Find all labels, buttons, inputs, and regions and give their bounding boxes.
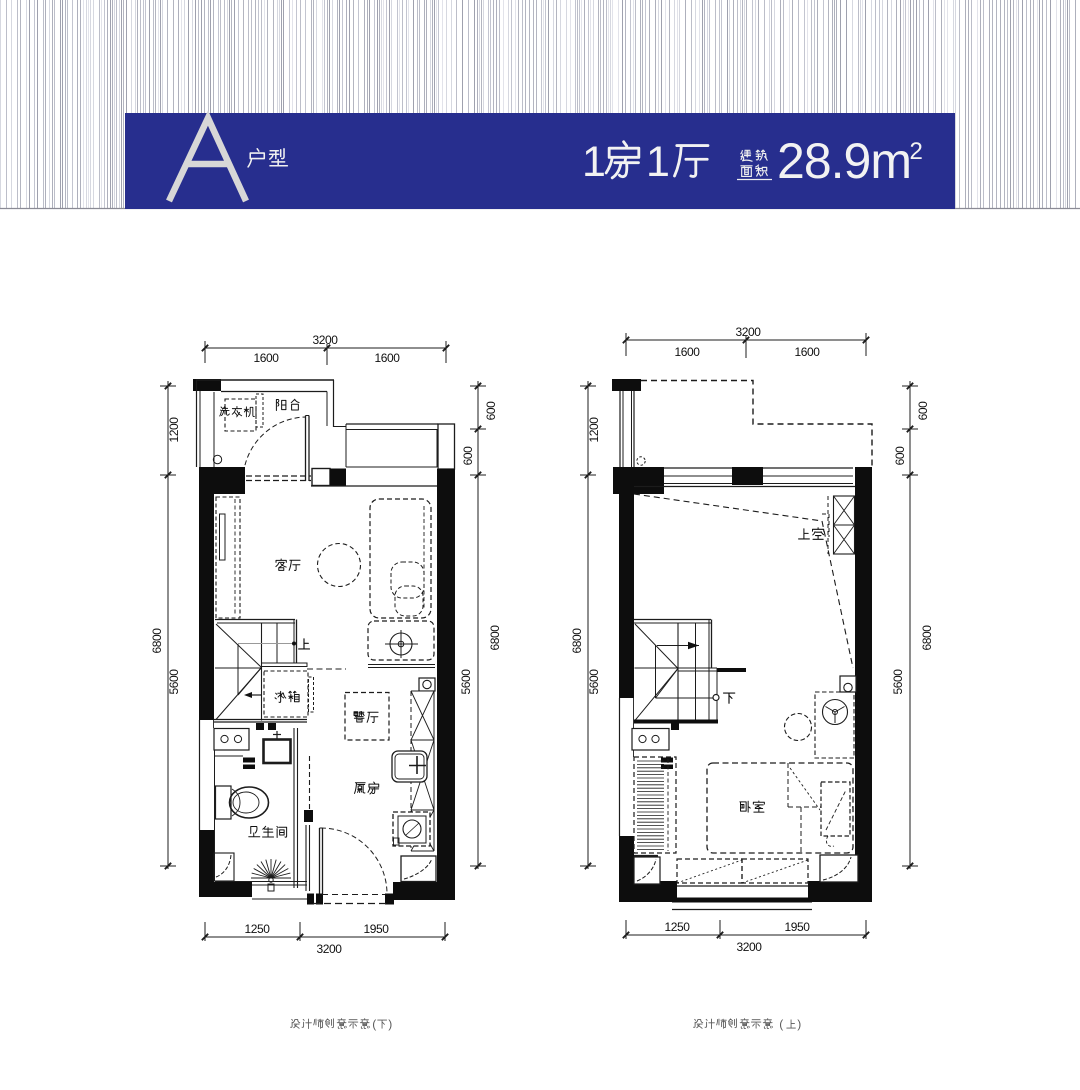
svg-text:5600: 5600 — [459, 669, 473, 695]
svg-text:6800: 6800 — [570, 628, 584, 654]
svg-text:): ) — [388, 1017, 392, 1031]
svg-text:(: ( — [779, 1017, 783, 1031]
svg-text:600: 600 — [461, 446, 475, 466]
svg-text:1: 1 — [646, 138, 670, 186]
svg-text:5600: 5600 — [891, 669, 905, 695]
svg-text:1600: 1600 — [374, 351, 400, 365]
svg-text:3200: 3200 — [736, 940, 762, 954]
svg-text:6800: 6800 — [150, 628, 164, 654]
svg-text:1250: 1250 — [664, 920, 690, 934]
svg-text:600: 600 — [893, 446, 907, 466]
svg-text:3200: 3200 — [316, 942, 342, 956]
svg-text:600: 600 — [916, 401, 930, 421]
svg-text:): ) — [797, 1017, 801, 1031]
svg-text:1600: 1600 — [794, 345, 820, 359]
svg-text:1950: 1950 — [363, 922, 389, 936]
svg-text:28.9m: 28.9m — [777, 133, 911, 189]
svg-text:1600: 1600 — [253, 351, 279, 365]
svg-text:1: 1 — [582, 138, 606, 186]
svg-text:1200: 1200 — [587, 417, 601, 443]
svg-text:6800: 6800 — [488, 625, 502, 651]
svg-text:600: 600 — [484, 401, 498, 421]
svg-text:1250: 1250 — [244, 922, 270, 936]
svg-text:1200: 1200 — [167, 417, 181, 443]
svg-text:(: ( — [372, 1017, 376, 1031]
svg-text:3200: 3200 — [312, 333, 338, 347]
svg-text:1950: 1950 — [784, 920, 810, 934]
svg-text:5600: 5600 — [167, 669, 181, 695]
svg-text:6800: 6800 — [920, 625, 934, 651]
svg-text:1600: 1600 — [674, 345, 700, 359]
svg-text:2: 2 — [910, 138, 923, 165]
svg-text:5600: 5600 — [587, 669, 601, 695]
svg-text:3200: 3200 — [735, 325, 761, 339]
